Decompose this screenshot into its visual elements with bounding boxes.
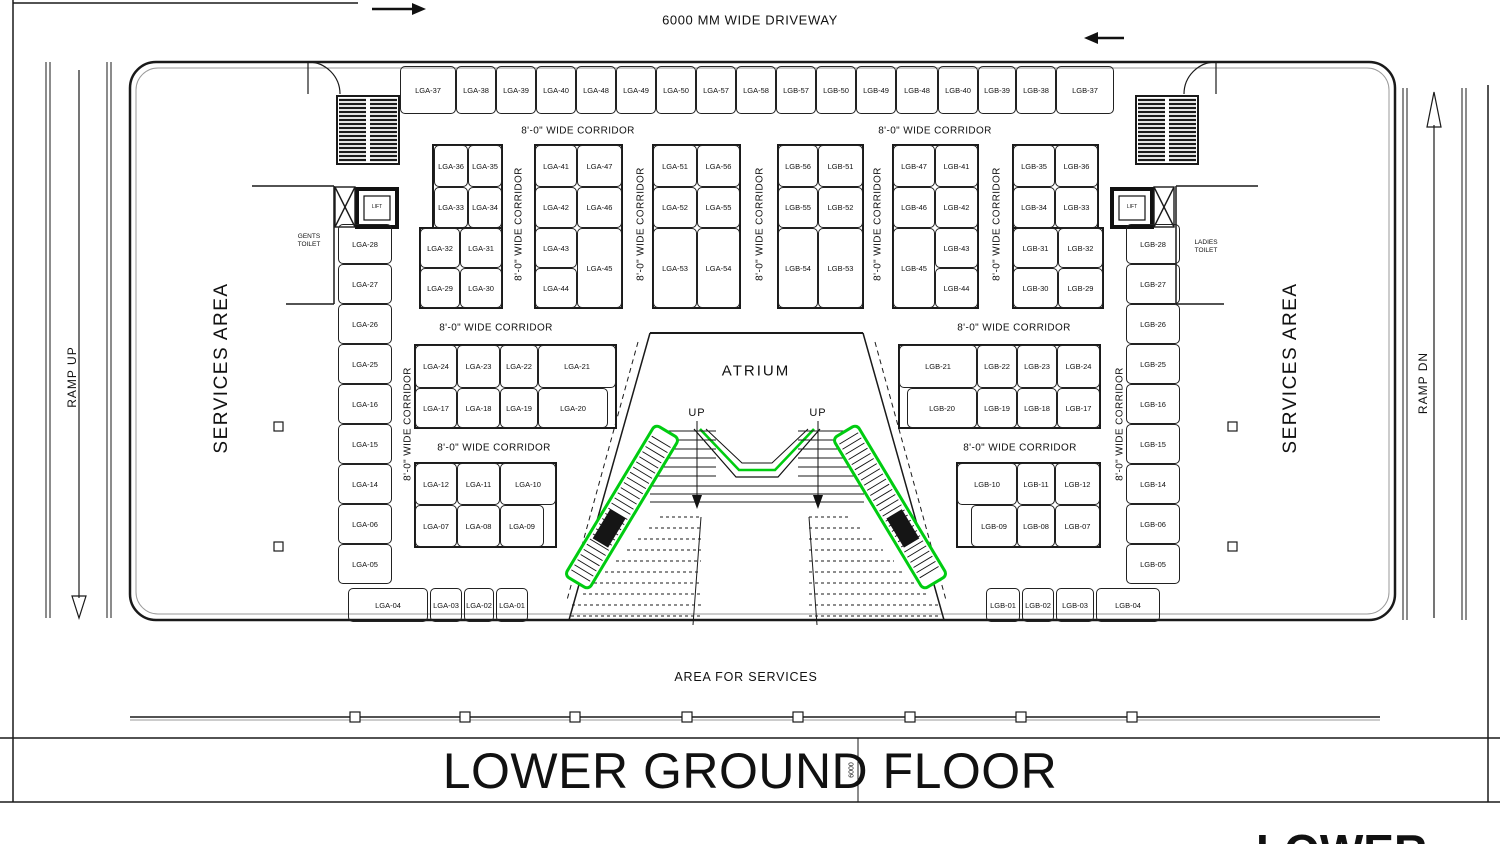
shop-unit-label: LGB-42 xyxy=(944,203,970,212)
ramp-up-lane xyxy=(46,62,111,618)
shop-unit-lga-29[interactable]: LGA-29 xyxy=(420,268,460,308)
shop-unit-lgb-28[interactable]: LGB-28 xyxy=(1126,224,1180,264)
driveway-arrow-right-icon xyxy=(372,3,426,15)
floor-plan: LGA-37LGA-38LGA-39LGA-40LGA-48LGA-49LGA-… xyxy=(0,0,1500,844)
shop-unit-label: LGB-09 xyxy=(981,522,1007,531)
shop-unit-label: LGB-48 xyxy=(904,86,930,95)
shop-unit-lga-49[interactable]: LGA-49 xyxy=(616,66,656,114)
shop-unit-lga-43[interactable]: LGA-43 xyxy=(535,228,577,268)
shop-unit-lga-37[interactable]: LGA-37 xyxy=(400,66,456,114)
shop-unit-lgb-41[interactable]: LGB-41 xyxy=(935,145,978,187)
shop-unit-label: LGA-02 xyxy=(466,601,492,610)
shop-unit-label: LGA-07 xyxy=(423,522,449,531)
shop-unit-lga-45[interactable]: LGA-45 xyxy=(577,228,622,308)
shop-unit-lgb-30[interactable]: LGB-30 xyxy=(1013,268,1058,308)
shop-unit-lgb-21[interactable]: LGB-21 xyxy=(899,345,977,388)
shop-unit-label: LGB-56 xyxy=(785,162,811,171)
shop-unit-lga-31[interactable]: LGA-31 xyxy=(460,228,502,268)
shop-unit-label: LGB-22 xyxy=(984,362,1010,371)
shop-unit-label: LGB-06 xyxy=(1140,520,1166,529)
shop-unit-lga-12[interactable]: LGA-12 xyxy=(415,463,457,505)
up-arrow-left-icon xyxy=(692,421,702,509)
shop-unit-lga-04[interactable]: LGA-04 xyxy=(348,588,428,622)
shop-unit-lga-42[interactable]: LGA-42 xyxy=(535,187,577,228)
shop-unit-lgb-56[interactable]: LGB-56 xyxy=(778,145,818,187)
shop-unit-label: LGA-48 xyxy=(583,86,609,95)
shop-unit-lgb-20[interactable]: LGB-20 xyxy=(907,388,977,428)
shop-unit-label: LGB-11 xyxy=(1023,480,1048,489)
shop-unit-label: LGB-02 xyxy=(1025,601,1051,610)
shop-unit-label: LGA-16 xyxy=(352,400,378,409)
shop-unit-label: LGA-06 xyxy=(352,520,378,529)
shop-unit-label: LGA-03 xyxy=(433,601,459,610)
shop-unit-lga-03[interactable]: LGA-03 xyxy=(430,588,462,622)
site-boundary xyxy=(13,0,1488,802)
shop-unit-label: LGA-34 xyxy=(472,203,498,212)
shop-unit-label: LGA-33 xyxy=(438,203,464,212)
shop-unit-label: LGA-26 xyxy=(352,320,378,329)
lift-right-icon xyxy=(1112,189,1152,227)
title-strip-lines xyxy=(0,738,1500,802)
shop-unit-label: LGA-20 xyxy=(560,404,586,413)
shop-unit-lga-52[interactable]: LGA-52 xyxy=(653,187,697,228)
shop-unit-lga-33[interactable]: LGA-33 xyxy=(434,187,468,228)
shop-unit-label: LGA-18 xyxy=(466,404,492,413)
shop-unit-lga-18[interactable]: LGA-18 xyxy=(457,388,500,428)
shop-unit-lga-47[interactable]: LGA-47 xyxy=(577,145,622,187)
shop-unit-label: LGA-24 xyxy=(423,362,449,371)
shop-unit-label: LGB-46 xyxy=(901,203,927,212)
shop-unit-lgb-39[interactable]: LGB-39 xyxy=(978,66,1016,114)
shop-unit-lga-58[interactable]: LGA-58 xyxy=(736,66,776,114)
shop-unit-lga-56[interactable]: LGA-56 xyxy=(697,145,740,187)
ramp-down-lane xyxy=(1403,88,1466,620)
shop-unit-lga-51[interactable]: LGA-51 xyxy=(653,145,697,187)
shop-unit-lga-16[interactable]: LGA-16 xyxy=(338,384,392,424)
shop-unit-lgb-23[interactable]: LGB-23 xyxy=(1017,345,1057,388)
shop-unit-label: LGA-23 xyxy=(466,362,492,371)
shop-unit-label: LGB-18 xyxy=(1024,404,1050,413)
shop-unit-label: LGA-55 xyxy=(706,203,732,212)
shop-unit-lgb-53[interactable]: LGB-53 xyxy=(818,228,863,308)
shop-unit-lga-55[interactable]: LGA-55 xyxy=(697,187,740,228)
shop-unit-label: LGB-47 xyxy=(901,162,927,171)
shop-unit-lgb-11[interactable]: LGB-11 xyxy=(1017,463,1055,505)
shop-unit-label: LGA-37 xyxy=(415,86,441,95)
shop-unit-label: LGB-37 xyxy=(1072,86,1098,95)
shop-unit-label: LGA-41 xyxy=(543,162,569,171)
shop-unit-lgb-40[interactable]: LGB-40 xyxy=(938,66,978,114)
shop-unit-lgb-01[interactable]: LGB-01 xyxy=(986,588,1020,622)
shop-unit-label: LGB-51 xyxy=(828,162,854,171)
shop-unit-lga-19[interactable]: LGA-19 xyxy=(500,388,538,428)
shop-unit-lgb-57[interactable]: LGB-57 xyxy=(776,66,816,114)
shop-unit-label: LGB-08 xyxy=(1023,522,1049,531)
shop-unit-label: LGA-01 xyxy=(499,601,525,610)
shop-unit-lgb-07[interactable]: LGB-07 xyxy=(1055,505,1100,547)
shop-unit-lgb-49[interactable]: LGB-49 xyxy=(856,66,896,114)
shop-unit-lga-21[interactable]: LGA-21 xyxy=(538,345,616,388)
shop-unit-lgb-27[interactable]: LGB-27 xyxy=(1126,264,1180,304)
shop-unit-lgb-46[interactable]: LGB-46 xyxy=(893,187,935,228)
shop-unit-label: LGB-28 xyxy=(1140,240,1166,249)
shop-unit-lgb-55[interactable]: LGB-55 xyxy=(778,187,818,228)
shop-unit-label: LGA-10 xyxy=(515,480,541,489)
shop-unit-lga-30[interactable]: LGA-30 xyxy=(460,268,502,308)
shop-unit-lga-50[interactable]: LGA-50 xyxy=(656,66,696,114)
shop-unit-lgb-22[interactable]: LGB-22 xyxy=(977,345,1017,388)
shop-unit-label: LGB-23 xyxy=(1024,362,1050,371)
lift-left-icon xyxy=(357,189,397,227)
shop-unit-lga-57[interactable]: LGA-57 xyxy=(696,66,736,114)
shop-unit-label: LGA-12 xyxy=(423,480,449,489)
shop-unit-lgb-34[interactable]: LGB-34 xyxy=(1013,187,1055,228)
shop-unit-label: LGA-54 xyxy=(706,264,732,273)
shop-unit-label: LGA-42 xyxy=(543,203,569,212)
shop-unit-label: LGB-26 xyxy=(1140,320,1166,329)
shop-unit-label: LGB-54 xyxy=(785,264,811,273)
shop-unit-label: LGB-55 xyxy=(785,203,811,212)
shop-unit-lga-06[interactable]: LGA-06 xyxy=(338,504,392,544)
shop-unit-label: LGB-24 xyxy=(1066,362,1092,371)
shop-unit-label: LGB-52 xyxy=(828,203,854,212)
shop-unit-lgb-18[interactable]: LGB-18 xyxy=(1017,388,1057,428)
shop-unit-lgb-02[interactable]: LGB-02 xyxy=(1022,588,1054,622)
entrance-door-right-icon xyxy=(1184,62,1216,94)
shop-unit-lgb-17[interactable]: LGB-17 xyxy=(1057,388,1100,428)
shop-unit-label: LGA-39 xyxy=(503,86,529,95)
shop-unit-lga-17[interactable]: LGA-17 xyxy=(415,388,457,428)
shop-unit-lga-08[interactable]: LGA-08 xyxy=(457,505,500,547)
shop-unit-lgb-38[interactable]: LGB-38 xyxy=(1016,66,1056,114)
shop-unit-lga-34[interactable]: LGA-34 xyxy=(468,187,502,228)
shop-unit-label: LGB-03 xyxy=(1062,601,1088,610)
shop-unit-lgb-45[interactable]: LGB-45 xyxy=(893,228,935,308)
shop-unit-label: LGA-31 xyxy=(468,244,494,253)
shop-unit-label: LGB-36 xyxy=(1064,162,1090,171)
shop-unit-label: LGB-21 xyxy=(925,362,951,371)
shop-unit-lgb-04[interactable]: LGB-04 xyxy=(1096,588,1160,622)
shop-unit-label: LGA-57 xyxy=(703,86,729,95)
shop-unit-label: LGB-38 xyxy=(1023,86,1049,95)
shop-unit-lga-38[interactable]: LGA-38 xyxy=(456,66,496,114)
shop-unit-lga-44[interactable]: LGA-44 xyxy=(535,268,577,308)
shop-unit-label: LGB-17 xyxy=(1066,404,1092,413)
shop-unit-label: LGB-43 xyxy=(944,244,970,253)
shop-unit-lgb-42[interactable]: LGB-42 xyxy=(935,187,978,228)
shop-unit-lgb-12[interactable]: LGB-12 xyxy=(1055,463,1100,505)
shop-unit-label: LGA-50 xyxy=(663,86,689,95)
shop-unit-lga-07[interactable]: LGA-07 xyxy=(415,505,457,547)
shop-unit-label: LGB-19 xyxy=(984,404,1010,413)
shop-unit-lga-40[interactable]: LGA-40 xyxy=(536,66,576,114)
toilet-right-walls xyxy=(1176,186,1258,304)
shop-unit-lgb-03[interactable]: LGB-03 xyxy=(1056,588,1094,622)
shop-unit-lgb-50[interactable]: LGB-50 xyxy=(816,66,856,114)
shop-unit-label: LGB-25 xyxy=(1140,360,1166,369)
shop-unit-lgb-48[interactable]: LGB-48 xyxy=(896,66,938,114)
shop-unit-label: LGB-41 xyxy=(944,162,970,171)
shop-unit-label: LGB-49 xyxy=(863,86,889,95)
shop-unit-lga-46[interactable]: LGA-46 xyxy=(577,187,622,228)
shop-unit-label: LGB-31 xyxy=(1023,244,1049,253)
shop-unit-lgb-31[interactable]: LGB-31 xyxy=(1013,228,1058,268)
shop-unit-lga-41[interactable]: LGA-41 xyxy=(535,145,577,187)
shop-unit-label: LGA-49 xyxy=(623,86,649,95)
shop-unit-label: LGB-29 xyxy=(1068,284,1094,293)
shop-unit-label: LGA-35 xyxy=(472,162,498,171)
shop-unit-label: LGA-15 xyxy=(352,440,378,449)
toilet-left-walls xyxy=(252,186,334,304)
shop-unit-label: LGB-40 xyxy=(945,86,971,95)
shop-unit-label: LGA-46 xyxy=(587,203,613,212)
shop-unit-label: LGB-14 xyxy=(1140,480,1166,489)
shop-unit-label: LGA-05 xyxy=(352,560,378,569)
shop-unit-label: LGA-08 xyxy=(466,522,492,531)
shop-unit-label: LGA-53 xyxy=(662,264,688,273)
driveway-arrow-left-icon xyxy=(1084,32,1124,44)
shop-unit-label: LGB-34 xyxy=(1021,203,1047,212)
up-arrow-right-icon xyxy=(813,421,823,509)
services-strip xyxy=(130,717,1380,720)
shop-unit-label: LGB-57 xyxy=(783,86,809,95)
shop-unit-label: LGA-29 xyxy=(427,284,453,293)
shop-unit-lga-26[interactable]: LGA-26 xyxy=(338,304,392,344)
shop-unit-label: LGA-19 xyxy=(506,404,532,413)
shop-unit-label: LGB-16 xyxy=(1140,400,1166,409)
shop-unit-lgb-24[interactable]: LGB-24 xyxy=(1057,345,1100,388)
shop-unit-lgb-51[interactable]: LGB-51 xyxy=(818,145,863,187)
shop-unit-lga-25[interactable]: LGA-25 xyxy=(338,344,392,384)
shop-unit-label: LGA-22 xyxy=(506,362,532,371)
shop-unit-label: LGA-30 xyxy=(468,284,494,293)
shop-unit-label: LGA-11 xyxy=(466,480,491,489)
shop-unit-lgb-06[interactable]: LGB-06 xyxy=(1126,504,1180,544)
shop-unit-lga-48[interactable]: LGA-48 xyxy=(576,66,616,114)
shop-unit-label: LGA-38 xyxy=(463,86,489,95)
shop-unit-lga-36[interactable]: LGA-36 xyxy=(434,145,468,187)
shop-unit-lgb-32[interactable]: LGB-32 xyxy=(1058,228,1103,268)
shop-unit-label: LGA-52 xyxy=(662,203,688,212)
shop-unit-lga-15[interactable]: LGA-15 xyxy=(338,424,392,464)
shop-unit-lga-14[interactable]: LGA-14 xyxy=(338,464,392,504)
shop-unit-label: LGA-04 xyxy=(375,601,401,610)
shop-unit-label: LGB-12 xyxy=(1065,480,1091,489)
shop-unit-lgb-37[interactable]: LGB-37 xyxy=(1056,66,1114,114)
shop-unit-lga-02[interactable]: LGA-02 xyxy=(464,588,494,622)
shop-unit-lgb-35[interactable]: LGB-35 xyxy=(1013,145,1055,187)
shop-unit-lga-23[interactable]: LGA-23 xyxy=(457,345,500,388)
shop-unit-lgb-10[interactable]: LGB-10 xyxy=(957,463,1017,505)
shop-unit-label: LGB-20 xyxy=(929,404,955,413)
shop-unit-label: LGA-43 xyxy=(543,244,569,253)
shop-unit-label: LGA-45 xyxy=(587,264,613,273)
shop-unit-label: LGB-50 xyxy=(823,86,849,95)
shop-unit-label: LGB-05 xyxy=(1140,560,1166,569)
shop-unit-label: LGA-21 xyxy=(564,362,590,371)
shop-unit-lgb-26[interactable]: LGB-26 xyxy=(1126,304,1180,344)
stair-core-handrails xyxy=(694,429,820,477)
shop-unit-lgb-33[interactable]: LGB-33 xyxy=(1055,187,1098,228)
shop-unit-label: LGA-32 xyxy=(427,244,453,253)
shop-unit-lgb-29[interactable]: LGB-29 xyxy=(1058,268,1103,308)
shop-unit-label: LGB-35 xyxy=(1021,162,1047,171)
shop-unit-label: LGA-09 xyxy=(509,522,535,531)
entrance-door-left-icon xyxy=(308,62,340,94)
shop-unit-label: LGB-10 xyxy=(974,480,1000,489)
shop-unit-label: LGA-27 xyxy=(352,280,378,289)
shop-unit-lga-10[interactable]: LGA-10 xyxy=(500,463,556,505)
shop-unit-lga-54[interactable]: LGA-54 xyxy=(697,228,740,308)
shop-unit-lga-01[interactable]: LGA-01 xyxy=(496,588,528,622)
shop-unit-lga-05[interactable]: LGA-05 xyxy=(338,544,392,584)
shop-unit-lgb-52[interactable]: LGB-52 xyxy=(818,187,863,228)
shop-unit-label: LGB-39 xyxy=(984,86,1010,95)
shop-unit-lgb-25[interactable]: LGB-25 xyxy=(1126,344,1180,384)
shop-unit-label: LGA-58 xyxy=(743,86,769,95)
escalator-right-icon xyxy=(833,424,948,589)
shop-unit-lga-22[interactable]: LGA-22 xyxy=(500,345,538,388)
shop-unit-lgb-47[interactable]: LGB-47 xyxy=(893,145,935,187)
shop-unit-lga-39[interactable]: LGA-39 xyxy=(496,66,536,114)
shop-unit-label: LGB-07 xyxy=(1065,522,1091,531)
shop-unit-label: LGB-32 xyxy=(1068,244,1094,253)
shop-unit-label: LGB-45 xyxy=(901,264,927,273)
shop-unit-lgb-19[interactable]: LGB-19 xyxy=(977,388,1017,428)
building-outline xyxy=(130,62,1395,620)
plan-linework xyxy=(0,0,1500,844)
shop-unit-label: LGB-44 xyxy=(944,284,970,293)
shop-unit-label: LGB-53 xyxy=(828,264,854,273)
shop-unit-label: LGA-36 xyxy=(438,162,464,171)
shop-unit-lga-27[interactable]: LGA-27 xyxy=(338,264,392,304)
shaft-right-icon xyxy=(1154,187,1174,227)
shop-unit-lga-32[interactable]: LGA-32 xyxy=(420,228,460,268)
shop-unit-label: LGB-33 xyxy=(1064,203,1090,212)
shop-unit-label: LGA-51 xyxy=(662,162,688,171)
shop-unit-label: LGB-30 xyxy=(1023,284,1049,293)
shop-unit-lgb-15[interactable]: LGB-15 xyxy=(1126,424,1180,464)
shop-unit-label: LGB-15 xyxy=(1140,440,1166,449)
shop-unit-lgb-05[interactable]: LGB-05 xyxy=(1126,544,1180,584)
shop-unit-label: LGB-01 xyxy=(990,601,1016,610)
shop-unit-lgb-44[interactable]: LGB-44 xyxy=(935,268,978,308)
shop-unit-label: LGA-44 xyxy=(543,284,569,293)
shop-unit-label: LGA-17 xyxy=(423,404,449,413)
shop-unit-lgb-54[interactable]: LGB-54 xyxy=(778,228,818,308)
shop-unit-lga-53[interactable]: LGA-53 xyxy=(653,228,697,308)
shop-unit-lgb-16[interactable]: LGB-16 xyxy=(1126,384,1180,424)
shop-unit-label: LGA-25 xyxy=(352,360,378,369)
shop-unit-label: LGA-56 xyxy=(706,162,732,171)
shop-unit-label: LGA-14 xyxy=(352,480,378,489)
escalator-left-icon xyxy=(565,424,680,589)
shop-unit-lga-09[interactable]: LGA-09 xyxy=(500,505,544,547)
shop-unit-lgb-36[interactable]: LGB-36 xyxy=(1055,145,1098,187)
shop-unit-label: LGA-40 xyxy=(543,86,569,95)
shaft-left-icon xyxy=(335,187,355,227)
shop-unit-lga-20[interactable]: LGA-20 xyxy=(538,388,608,428)
shop-unit-lgb-43[interactable]: LGB-43 xyxy=(935,228,978,268)
shop-unit-label: LGA-28 xyxy=(352,240,378,249)
shop-unit-lga-11[interactable]: LGA-11 xyxy=(457,463,500,505)
shop-unit-lga-35[interactable]: LGA-35 xyxy=(468,145,502,187)
shop-unit-lgb-08[interactable]: LGB-08 xyxy=(1017,505,1055,547)
shop-unit-lga-28[interactable]: LGA-28 xyxy=(338,224,392,264)
shop-unit-lga-24[interactable]: LGA-24 xyxy=(415,345,457,388)
shop-unit-lgb-14[interactable]: LGB-14 xyxy=(1126,464,1180,504)
shop-unit-label: LGB-04 xyxy=(1115,601,1141,610)
shop-unit-label: LGB-27 xyxy=(1140,280,1166,289)
shop-unit-label: LGA-47 xyxy=(587,162,613,171)
shop-unit-lgb-09[interactable]: LGB-09 xyxy=(971,505,1017,547)
